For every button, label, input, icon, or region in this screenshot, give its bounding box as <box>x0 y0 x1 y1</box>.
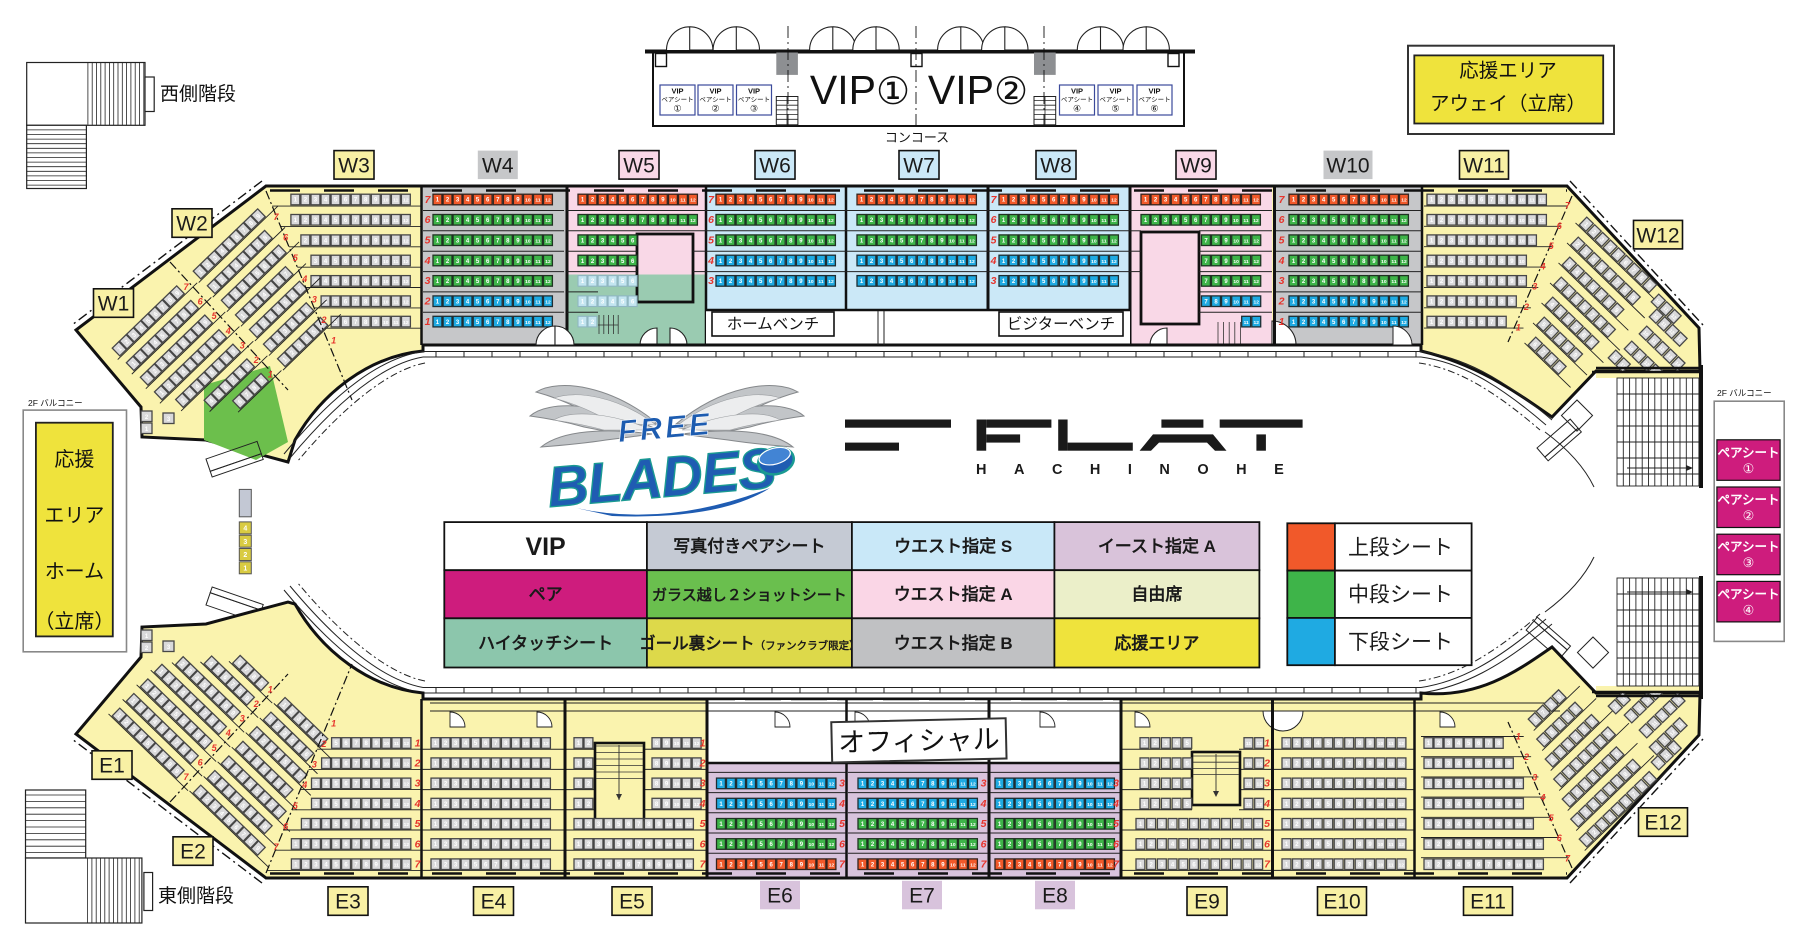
svg-text:12: 12 <box>828 238 834 244</box>
svg-text:10: 10 <box>525 299 531 305</box>
svg-text:10: 10 <box>949 259 955 265</box>
svg-text:10: 10 <box>809 802 815 808</box>
svg-text:6: 6 <box>981 838 987 850</box>
svg-text:11: 11 <box>533 761 538 767</box>
svg-text:10: 10 <box>950 822 956 828</box>
svg-text:10: 10 <box>1381 279 1387 285</box>
svg-text:6: 6 <box>425 214 431 226</box>
svg-text:6: 6 <box>1264 838 1270 850</box>
svg-text:11: 11 <box>1246 741 1251 747</box>
svg-text:12: 12 <box>545 299 551 305</box>
svg-text:ペア: ペア <box>529 585 563 604</box>
svg-text:W2: W2 <box>176 213 208 236</box>
svg-text:12: 12 <box>1401 198 1407 204</box>
svg-text:ペアシート: ペアシート <box>1717 540 1779 554</box>
svg-text:ペアシート: ペアシート <box>1061 96 1093 104</box>
svg-text:10: 10 <box>1378 822 1384 828</box>
svg-text:1: 1 <box>700 737 706 749</box>
svg-text:12: 12 <box>403 299 409 305</box>
svg-text:11: 11 <box>680 198 685 204</box>
svg-text:11: 11 <box>1529 238 1534 244</box>
svg-text:3: 3 <box>1264 778 1270 790</box>
svg-text:10: 10 <box>384 842 390 848</box>
svg-text:10: 10 <box>1519 259 1525 265</box>
svg-text:11: 11 <box>1388 842 1393 848</box>
svg-text:11: 11 <box>819 802 824 808</box>
svg-text:11: 11 <box>676 822 681 828</box>
svg-text:12: 12 <box>829 782 835 788</box>
svg-text:11: 11 <box>818 198 823 204</box>
svg-text:11: 11 <box>535 259 540 265</box>
svg-text:ガラス越し２ショットシート: ガラス越し２ショットシート <box>652 586 847 604</box>
svg-text:12: 12 <box>1111 279 1117 285</box>
svg-text:11: 11 <box>819 822 824 828</box>
svg-text:11: 11 <box>1097 842 1102 848</box>
svg-text:12: 12 <box>1399 802 1405 808</box>
svg-text:アウェイ（立席）: アウェイ（立席） <box>1430 93 1586 115</box>
svg-text:12: 12 <box>404 862 410 868</box>
svg-text:10: 10 <box>1519 198 1525 204</box>
svg-text:写真付きペアシート: 写真付きペアシート <box>673 536 825 556</box>
svg-text:11: 11 <box>1101 238 1106 244</box>
svg-text:10: 10 <box>523 822 529 828</box>
svg-text:4: 4 <box>1278 255 1285 267</box>
svg-text:3: 3 <box>708 275 714 287</box>
svg-text:W10: W10 <box>1326 154 1369 177</box>
svg-text:10: 10 <box>808 198 814 204</box>
svg-text:VIP: VIP <box>709 87 721 96</box>
svg-text:11: 11 <box>676 862 681 868</box>
svg-text:12: 12 <box>543 842 549 848</box>
svg-text:3: 3 <box>1532 772 1537 782</box>
svg-text:11: 11 <box>960 842 965 848</box>
svg-text:10: 10 <box>674 802 680 808</box>
svg-text:ペアシート: ペアシート <box>1717 587 1779 601</box>
svg-text:ペアシート: ペアシート <box>1099 96 1131 104</box>
svg-text:10: 10 <box>1516 822 1522 828</box>
svg-text:10: 10 <box>950 802 956 808</box>
svg-text:12: 12 <box>1256 741 1262 747</box>
svg-text:12: 12 <box>1401 238 1407 244</box>
svg-text:ペアシート: ペアシート <box>699 96 731 104</box>
svg-text:10: 10 <box>525 218 531 224</box>
svg-text:11: 11 <box>535 198 540 204</box>
svg-text:W6: W6 <box>759 154 791 177</box>
svg-text:11: 11 <box>1388 741 1393 747</box>
svg-text:10: 10 <box>1516 862 1522 868</box>
svg-text:10: 10 <box>674 761 680 767</box>
svg-text:5: 5 <box>981 818 987 830</box>
svg-text:12: 12 <box>828 259 834 265</box>
svg-text:10: 10 <box>523 761 529 767</box>
svg-text:11: 11 <box>1246 761 1251 767</box>
svg-text:3: 3 <box>243 539 247 546</box>
svg-text:③: ③ <box>750 104 758 114</box>
svg-text:11: 11 <box>1388 802 1393 808</box>
svg-text:6: 6 <box>700 838 706 850</box>
svg-text:⑥: ⑥ <box>1150 104 1158 114</box>
svg-text:11: 11 <box>676 842 681 848</box>
svg-text:12: 12 <box>1536 862 1542 868</box>
svg-text:10: 10 <box>1378 741 1384 747</box>
svg-text:12: 12 <box>543 822 549 828</box>
svg-text:11: 11 <box>1391 238 1396 244</box>
svg-text:5: 5 <box>425 235 431 247</box>
svg-text:11: 11 <box>960 782 965 788</box>
svg-text:10: 10 <box>1091 218 1097 224</box>
svg-text:11: 11 <box>960 802 965 808</box>
svg-text:12: 12 <box>1401 320 1407 326</box>
svg-text:HACHINOHE: HACHINOHE <box>976 462 1311 478</box>
svg-text:2: 2 <box>699 758 706 770</box>
svg-text:1: 1 <box>268 684 273 694</box>
svg-text:12: 12 <box>1256 761 1262 767</box>
svg-text:4: 4 <box>424 255 431 267</box>
svg-text:12: 12 <box>543 741 549 747</box>
svg-text:VIP: VIP <box>1109 87 1121 96</box>
svg-text:4: 4 <box>838 798 845 810</box>
svg-text:（立席）: （立席） <box>34 610 114 633</box>
svg-text:E1: E1 <box>99 755 125 778</box>
svg-text:10: 10 <box>1091 259 1097 265</box>
svg-text:5: 5 <box>991 235 997 247</box>
svg-text:4: 4 <box>301 780 307 790</box>
svg-text:VIP②: VIP② <box>928 67 1028 113</box>
svg-text:12: 12 <box>545 259 551 265</box>
svg-text:W11: W11 <box>1463 154 1505 177</box>
svg-text:2: 2 <box>1523 302 1529 312</box>
svg-text:12: 12 <box>403 259 409 265</box>
svg-text:3: 3 <box>1279 275 1285 287</box>
svg-text:5: 5 <box>1113 818 1119 830</box>
svg-text:⑤: ⑤ <box>1111 104 1119 114</box>
svg-text:12: 12 <box>970 822 976 828</box>
svg-text:10: 10 <box>384 862 390 868</box>
svg-text:5: 5 <box>415 818 421 830</box>
svg-text:ウエスト指定 S: ウエスト指定 S <box>894 536 1012 556</box>
svg-text:5: 5 <box>1279 235 1285 247</box>
svg-text:5: 5 <box>700 818 706 830</box>
svg-text:11: 11 <box>1243 218 1248 224</box>
svg-text:4: 4 <box>707 255 714 267</box>
svg-text:1: 1 <box>415 737 421 749</box>
svg-text:E4: E4 <box>481 891 507 914</box>
svg-text:11: 11 <box>1526 842 1531 848</box>
svg-text:応援: 応援 <box>54 448 94 471</box>
svg-text:10: 10 <box>1516 802 1522 808</box>
svg-text:10: 10 <box>1233 218 1239 224</box>
svg-text:10: 10 <box>809 822 815 828</box>
svg-text:10: 10 <box>384 741 390 747</box>
svg-text:10: 10 <box>1378 862 1384 868</box>
svg-text:12: 12 <box>1539 198 1545 204</box>
svg-text:11: 11 <box>1391 218 1396 224</box>
svg-text:11: 11 <box>394 761 399 767</box>
svg-text:11: 11 <box>394 842 399 848</box>
svg-text:12: 12 <box>1401 299 1407 305</box>
svg-text:11: 11 <box>1101 198 1106 204</box>
svg-text:VIP: VIP <box>1148 87 1160 96</box>
svg-text:ペアシート: ペアシート <box>1717 446 1779 460</box>
svg-text:10: 10 <box>523 741 529 747</box>
svg-text:12: 12 <box>829 822 835 828</box>
svg-text:11: 11 <box>1391 198 1396 204</box>
svg-text:エリア: エリア <box>44 505 104 527</box>
svg-text:2: 2 <box>424 296 431 308</box>
svg-text:3: 3 <box>991 275 997 287</box>
svg-text:10: 10 <box>1381 238 1387 244</box>
svg-text:10: 10 <box>1378 802 1384 808</box>
svg-text:自由席: 自由席 <box>1131 584 1182 604</box>
svg-text:11: 11 <box>533 842 538 848</box>
svg-text:12: 12 <box>543 782 549 788</box>
svg-text:12: 12 <box>1399 782 1405 788</box>
svg-text:10: 10 <box>383 198 389 204</box>
svg-text:2: 2 <box>320 315 326 325</box>
svg-text:11: 11 <box>959 238 964 244</box>
svg-text:12: 12 <box>690 218 696 224</box>
svg-text:11: 11 <box>393 299 398 305</box>
svg-text:ホーム: ホーム <box>45 561 104 583</box>
svg-text:ホームベンチ: ホームベンチ <box>727 316 820 333</box>
svg-text:11: 11 <box>535 299 540 305</box>
svg-text:10: 10 <box>384 822 390 828</box>
svg-text:11: 11 <box>1244 238 1249 244</box>
svg-text:3: 3 <box>1532 282 1537 292</box>
svg-text:11: 11 <box>1388 862 1393 868</box>
svg-text:12: 12 <box>1253 259 1259 265</box>
svg-text:10: 10 <box>383 218 389 224</box>
svg-text:12: 12 <box>969 259 975 265</box>
svg-text:12: 12 <box>1255 822 1261 828</box>
svg-text:4: 4 <box>980 798 987 810</box>
svg-text:11: 11 <box>960 862 965 868</box>
svg-text:12: 12 <box>1401 259 1407 265</box>
svg-text:11: 11 <box>535 218 540 224</box>
svg-text:12: 12 <box>545 218 551 224</box>
svg-text:11: 11 <box>1529 218 1534 224</box>
svg-text:10: 10 <box>523 802 529 808</box>
svg-text:11: 11 <box>393 279 398 285</box>
svg-text:12: 12 <box>1401 279 1407 285</box>
svg-text:W12: W12 <box>1636 224 1679 247</box>
svg-text:2: 2 <box>414 758 421 770</box>
svg-text:10: 10 <box>950 782 956 788</box>
svg-text:10: 10 <box>1516 842 1522 848</box>
svg-text:10: 10 <box>1233 299 1239 305</box>
svg-text:①: ① <box>673 104 681 114</box>
svg-text:10: 10 <box>808 259 814 265</box>
svg-text:12: 12 <box>545 320 551 326</box>
svg-text:3: 3 <box>981 778 987 790</box>
svg-text:11: 11 <box>393 259 398 265</box>
svg-text:1: 1 <box>1279 316 1285 328</box>
svg-text:10: 10 <box>1234 842 1240 848</box>
svg-text:11: 11 <box>1526 862 1531 868</box>
svg-text:1: 1 <box>331 718 336 728</box>
svg-text:11: 11 <box>1101 279 1106 285</box>
svg-text:10: 10 <box>666 842 672 848</box>
svg-text:6: 6 <box>839 838 845 850</box>
svg-text:オフィシャル: オフィシャル <box>838 724 1000 758</box>
svg-text:2: 2 <box>1523 752 1529 762</box>
svg-text:2: 2 <box>253 699 259 709</box>
svg-text:10: 10 <box>1087 802 1093 808</box>
svg-text:12: 12 <box>1256 782 1262 788</box>
svg-text:10: 10 <box>383 279 389 285</box>
svg-text:12: 12 <box>404 842 410 848</box>
svg-text:2F バルコニー: 2F バルコニー <box>28 398 83 408</box>
svg-text:10: 10 <box>949 238 955 244</box>
svg-text:5: 5 <box>839 818 845 830</box>
svg-text:12: 12 <box>1253 198 1259 204</box>
svg-text:ビジターベンチ: ビジターベンチ <box>1007 315 1115 333</box>
svg-text:2: 2 <box>1263 758 1270 770</box>
svg-text:10: 10 <box>1233 259 1239 265</box>
svg-text:10: 10 <box>1091 238 1097 244</box>
svg-text:12: 12 <box>1253 238 1259 244</box>
svg-text:西側階段: 西側階段 <box>160 83 236 105</box>
svg-text:東側階段: 東側階段 <box>158 885 234 907</box>
svg-text:下段シート: 下段シート <box>1348 631 1453 654</box>
svg-text:11: 11 <box>394 822 399 828</box>
svg-text:11: 11 <box>1391 259 1396 265</box>
svg-text:E3: E3 <box>335 891 361 914</box>
svg-text:W3: W3 <box>338 154 370 177</box>
svg-text:10: 10 <box>674 741 680 747</box>
svg-text:12: 12 <box>543 862 549 868</box>
svg-text:6: 6 <box>991 214 997 226</box>
svg-text:12: 12 <box>1253 279 1259 285</box>
svg-text:6: 6 <box>708 214 714 226</box>
svg-text:11: 11 <box>818 218 823 224</box>
svg-text:12: 12 <box>690 198 696 204</box>
svg-text:11: 11 <box>393 198 398 204</box>
svg-text:12: 12 <box>1536 842 1542 848</box>
svg-text:12: 12 <box>1111 218 1117 224</box>
svg-text:11: 11 <box>394 741 399 747</box>
svg-text:応援エリア: 応援エリア <box>1459 60 1557 82</box>
svg-text:10: 10 <box>1381 198 1387 204</box>
svg-text:11: 11 <box>1097 862 1102 868</box>
svg-text:12: 12 <box>970 862 976 868</box>
svg-text:W5: W5 <box>623 154 655 177</box>
svg-text:11: 11 <box>1388 761 1393 767</box>
svg-text:11: 11 <box>533 782 538 788</box>
svg-text:11: 11 <box>684 802 689 808</box>
svg-text:10: 10 <box>1519 218 1525 224</box>
svg-text:11: 11 <box>960 822 965 828</box>
svg-text:10: 10 <box>809 842 815 848</box>
svg-text:12: 12 <box>403 238 409 244</box>
svg-text:2F バルコニー: 2F バルコニー <box>1717 388 1772 398</box>
svg-text:12: 12 <box>1253 218 1259 224</box>
svg-text:10: 10 <box>666 862 672 868</box>
svg-text:11: 11 <box>684 741 689 747</box>
svg-text:11: 11 <box>535 320 540 326</box>
svg-text:W9: W9 <box>1180 154 1212 177</box>
svg-text:10: 10 <box>1519 279 1525 285</box>
svg-text:10: 10 <box>1087 862 1093 868</box>
svg-text:12: 12 <box>1399 822 1405 828</box>
svg-text:11: 11 <box>1097 782 1102 788</box>
svg-text:11: 11 <box>959 218 964 224</box>
svg-text:4: 4 <box>301 274 307 284</box>
svg-text:10: 10 <box>808 279 814 285</box>
svg-text:1: 1 <box>1264 737 1270 749</box>
svg-text:10: 10 <box>384 761 390 767</box>
svg-text:11: 11 <box>684 761 689 767</box>
svg-text:10: 10 <box>384 802 390 808</box>
svg-text:11: 11 <box>394 862 399 868</box>
svg-text:4: 4 <box>1112 798 1119 810</box>
svg-text:10: 10 <box>1087 822 1093 828</box>
svg-text:11: 11 <box>535 238 540 244</box>
svg-text:11: 11 <box>959 279 964 285</box>
svg-text:ハイタッチシート: ハイタッチシート <box>478 634 613 653</box>
svg-text:10: 10 <box>1378 842 1384 848</box>
svg-text:10: 10 <box>1381 320 1387 326</box>
svg-text:12: 12 <box>404 782 410 788</box>
svg-text:10: 10 <box>809 782 815 788</box>
svg-text:イースト指定 A: イースト指定 A <box>1098 536 1216 556</box>
svg-text:12: 12 <box>1401 218 1407 224</box>
svg-text:12: 12 <box>1253 320 1259 326</box>
svg-text:ウエスト指定 A: ウエスト指定 A <box>894 584 1013 604</box>
svg-text:E11: E11 <box>1470 891 1506 914</box>
svg-text:11: 11 <box>1388 782 1393 788</box>
svg-text:10: 10 <box>949 279 955 285</box>
svg-text:3: 3 <box>415 778 421 790</box>
svg-text:コンコース: コンコース <box>885 130 949 145</box>
svg-text:11: 11 <box>818 279 823 285</box>
svg-text:3: 3 <box>425 275 431 287</box>
svg-text:12: 12 <box>404 761 410 767</box>
svg-text:10: 10 <box>808 238 814 244</box>
svg-text:11: 11 <box>533 741 538 747</box>
svg-text:1: 1 <box>331 336 336 346</box>
svg-text:11: 11 <box>1245 862 1250 868</box>
svg-text:ペアシート: ペアシート <box>1717 493 1779 507</box>
svg-text:応援エリア: 応援エリア <box>1114 633 1199 653</box>
svg-text:W8: W8 <box>1040 154 1072 177</box>
svg-text:12: 12 <box>404 802 410 808</box>
svg-text:11: 11 <box>1246 802 1251 808</box>
svg-text:12: 12 <box>1539 218 1545 224</box>
svg-text:1: 1 <box>243 566 247 573</box>
svg-text:12: 12 <box>1253 299 1259 305</box>
svg-text:④: ④ <box>1743 602 1755 617</box>
svg-text:3: 3 <box>839 778 845 790</box>
svg-text:11: 11 <box>393 218 398 224</box>
svg-text:12: 12 <box>970 842 976 848</box>
svg-text:10: 10 <box>1087 782 1093 788</box>
svg-text:E10: E10 <box>1323 891 1360 914</box>
svg-text:11: 11 <box>819 842 824 848</box>
svg-text:11: 11 <box>819 782 824 788</box>
svg-text:4: 4 <box>1263 798 1270 810</box>
svg-text:11: 11 <box>1243 198 1248 204</box>
svg-text:12: 12 <box>970 802 976 808</box>
svg-text:12: 12 <box>1399 761 1405 767</box>
svg-text:W1: W1 <box>98 293 130 316</box>
svg-text:6: 6 <box>415 838 421 850</box>
svg-text:12: 12 <box>1256 802 1262 808</box>
svg-text:12: 12 <box>1399 842 1405 848</box>
svg-text:12: 12 <box>1399 741 1405 747</box>
svg-text:11: 11 <box>680 218 685 224</box>
svg-text:4: 4 <box>414 798 421 810</box>
